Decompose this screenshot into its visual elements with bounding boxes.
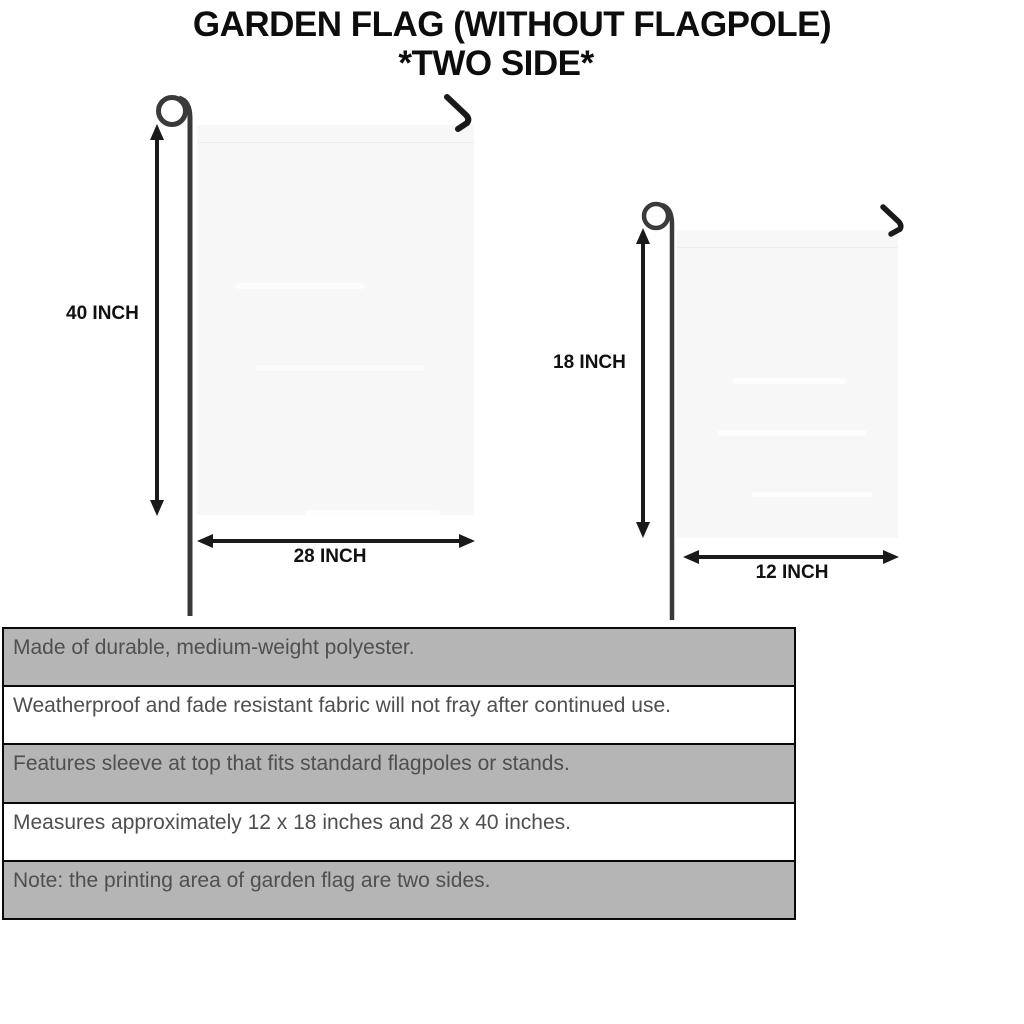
large-flagpole-wire-icon — [159, 98, 191, 617]
small-height-arrow-icon — [636, 228, 650, 538]
large-flag-width-label: 28 INCH — [250, 546, 410, 568]
flag-texture — [305, 510, 440, 515]
title-line-1: GARDEN FLAG (WITHOUT FLAGPOLE) — [0, 5, 1024, 44]
flag-texture — [732, 378, 847, 384]
spec-row-material: Made of durable, medium-weight polyester… — [4, 629, 794, 685]
title-line-2: *TWO SIDE* — [0, 44, 1008, 83]
garden-flag-infographic: GARDEN FLAG (WITHOUT FLAGPOLE) *TWO SIDE… — [0, 0, 1024, 1024]
flag-texture — [235, 283, 365, 289]
large-flag-sleeve — [197, 125, 474, 143]
small-flag-sleeve — [677, 230, 898, 248]
flag-texture — [752, 492, 872, 497]
flag-texture — [717, 430, 867, 436]
spec-row-note: Note: the printing area of garden flag a… — [4, 860, 794, 918]
small-flag-width-label: 12 INCH — [712, 562, 872, 584]
page-title: GARDEN FLAG (WITHOUT FLAGPOLE) *TWO SIDE… — [0, 5, 1024, 83]
small-flagpole-wire-icon — [644, 204, 672, 620]
spec-table: Made of durable, medium-weight polyester… — [2, 627, 796, 920]
spec-row-measures: Measures approximately 12 x 18 inches an… — [4, 802, 794, 860]
small-flag-height-label: 18 INCH — [553, 352, 626, 374]
large-flag-height-label: 40 INCH — [66, 303, 139, 325]
flag-texture — [255, 365, 425, 371]
spec-row-sleeve: Features sleeve at top that fits standar… — [4, 743, 794, 801]
large-flag — [197, 125, 474, 515]
spec-row-weatherproof: Weatherproof and fade resistant fabric w… — [4, 685, 794, 743]
large-height-arrow-icon — [150, 124, 164, 516]
small-flag — [677, 230, 898, 538]
